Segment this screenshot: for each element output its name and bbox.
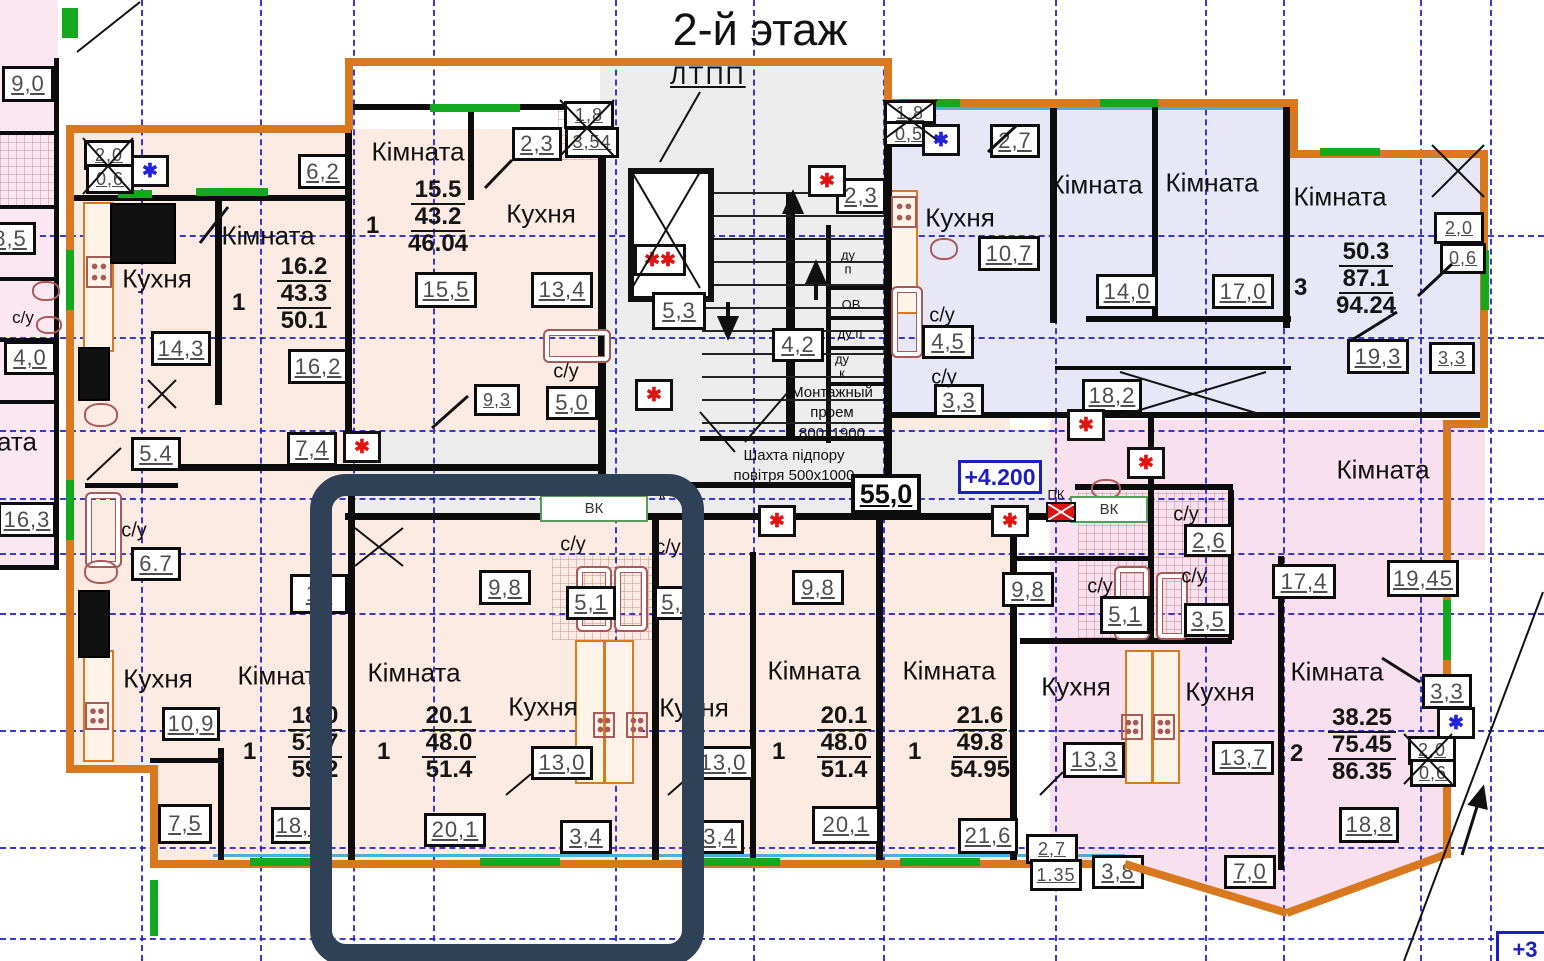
room-label: Кімната (1049, 171, 1142, 198)
area-value-box: 3,54 (565, 127, 619, 158)
building-outline (345, 58, 353, 130)
room-label: ОВ (842, 298, 861, 312)
area-value-box: 3,5 (1184, 603, 1232, 637)
ltpp-label: ЛТПП (670, 62, 746, 91)
area-value-box: 9,8 (792, 570, 844, 605)
room-label: Кімната (1336, 456, 1429, 483)
ltpp-block-fill (345, 62, 600, 108)
grid-axis-vertical (1205, 0, 1207, 961)
area-value-box: 9,8 (1002, 572, 1054, 607)
area-value-box: 10,9 (162, 707, 220, 741)
toilet-icon (930, 238, 958, 260)
area-value-box: 17,4 (1272, 564, 1336, 599)
area-value-box: 5.4 (131, 437, 181, 471)
room-label: Кімната (1290, 658, 1383, 685)
area-value-box: 0,6 (1410, 759, 1456, 787)
room-label: с/у (929, 306, 955, 327)
riser-marker-red: ✱ (635, 379, 673, 411)
building-outline (66, 125, 74, 773)
room-label: Кухня (1041, 673, 1111, 700)
room-label: Кухня (122, 265, 192, 292)
building-outline (66, 765, 158, 773)
room-label: Кімната (1293, 183, 1386, 210)
window-segment (66, 250, 74, 310)
grid-axis-horizontal (0, 553, 1544, 555)
room-label: ду п (841, 248, 855, 275)
room-label: Кімната (902, 657, 995, 684)
wardrobe-block (78, 590, 110, 658)
wall (0, 131, 58, 135)
area-value-box: 2,7 (990, 124, 1040, 158)
area-value-box: 16,3 (0, 502, 56, 537)
area-value-box: 2,0 (1434, 212, 1484, 244)
area-value-box: 5,0 (546, 386, 598, 420)
room-label: с/у (1087, 577, 1113, 598)
room-label: с/у (121, 521, 147, 542)
wall (0, 565, 58, 570)
riser-marker-red: ✱ (991, 505, 1029, 537)
riser-marker-red: ✱ (758, 505, 796, 537)
area-value-box: 13,7 (1212, 741, 1274, 775)
stove-icon (1121, 714, 1143, 740)
wall (1050, 108, 1057, 323)
area-value-box: 3,3 (934, 384, 984, 418)
apartment-stats: 1 20.148.051.4 (772, 702, 890, 783)
stove-icon (86, 256, 112, 288)
area-value-box: 1.35 (1030, 859, 1082, 891)
riser-marker-blue: ✱ (922, 124, 960, 156)
window-segment (196, 188, 268, 196)
area-value-box: 3,3 (1422, 674, 1472, 709)
riser-marker-red: ✱ (1067, 409, 1105, 441)
vk-riser-label: ВК (1070, 496, 1148, 523)
grid-axis-vertical (260, 0, 262, 961)
window-segment (66, 480, 74, 540)
apartment-stats: 3 50.387.194.24 (1294, 238, 1412, 319)
window-segment (900, 858, 980, 866)
wall (1010, 519, 1017, 862)
window-segment (700, 858, 780, 866)
stove-icon (85, 702, 109, 730)
apartment-stats: 1 15.543.246.04 (366, 176, 484, 257)
area-value-box: 7,0 (1224, 855, 1276, 889)
wall (168, 464, 600, 471)
room-label: Кухня (506, 200, 576, 227)
riser-marker-red: ✱ (808, 165, 846, 197)
grid-axis-horizontal (0, 938, 1544, 940)
wall (218, 748, 224, 860)
toilet-icon (36, 316, 62, 334)
room-label: ду п (838, 327, 863, 341)
area-value-box: 0,6 (86, 164, 134, 194)
area-value-box: 5,3 (652, 292, 706, 330)
window-segment (430, 104, 520, 112)
room-label: с/у (1181, 567, 1207, 588)
building-outline (1290, 99, 1298, 157)
area-value-box: 19,3 (1347, 339, 1409, 374)
grid-axis-horizontal (0, 613, 1544, 615)
glazing-line (888, 107, 1288, 110)
elevation-marker-corner: +3 (1496, 931, 1544, 961)
bathtub-icon (891, 286, 923, 358)
riser-marker-red-double: ✱✱ (634, 244, 686, 276)
riser-marker-blue: ✱ (131, 155, 169, 187)
wall (1278, 556, 1284, 870)
area-value-box: 17,0 (1212, 274, 1274, 309)
room-label: Кімната (221, 222, 314, 249)
area-value-box: 19,45 (1387, 560, 1459, 597)
mount-note: Монтажныйпроем800х1900 (770, 383, 894, 444)
area-value-box: 14,3 (151, 331, 211, 366)
area-value-box: 2,6 (1184, 524, 1234, 557)
room-label: с/у (553, 362, 579, 383)
grid-axis-horizontal (0, 498, 1544, 500)
area-value-box: 5,1 (1100, 596, 1150, 634)
bathtub-icon (85, 492, 122, 568)
building-outline (345, 58, 892, 66)
wall (1055, 366, 1291, 370)
wall (1086, 316, 1291, 322)
wall (750, 552, 756, 862)
grid-axis-horizontal (0, 847, 1544, 849)
area-value-box: 4,0 (4, 341, 56, 375)
area-value-box: 13,3 (1063, 742, 1125, 778)
area-value-box: 18,8 (1339, 807, 1399, 843)
wall (85, 483, 178, 488)
elevator-shaft (628, 168, 714, 302)
area-value-box: 7,4 (287, 432, 337, 466)
room-label: Кімната (371, 138, 464, 165)
area-value-box: 9,0 (2, 66, 54, 102)
area-value-box: 7,5 (158, 804, 212, 844)
room-label: Кухня (123, 665, 193, 692)
wardrobe-block (110, 203, 176, 264)
room-label: Кімната (767, 657, 860, 684)
area-value-box: 9,3 (474, 384, 520, 416)
floor-plan-canvas: 2-й этаж ЛТПП Монтажныйпроем800х1900 Шах… (0, 0, 1544, 961)
room-label: Кімната (1165, 169, 1258, 196)
area-value-box: 1,8 (564, 101, 614, 129)
pk-hatch-marker (1046, 502, 1076, 522)
window-segment (1100, 99, 1158, 107)
area-value-box: 3,8 (1092, 855, 1144, 889)
room-label: ата (0, 428, 37, 455)
building-outline (66, 125, 351, 133)
window-segment (1443, 600, 1451, 660)
room-label: с/у (12, 309, 34, 327)
area-value-box: 8,5 (0, 222, 36, 255)
wardrobe-block (78, 347, 110, 401)
toilet-icon (32, 281, 60, 301)
grid-axis-vertical (141, 0, 143, 961)
right-pink-apartments-fill (1010, 415, 1485, 915)
tiled-bath (0, 133, 58, 207)
area-value-box: 4,2 (772, 328, 824, 362)
grid-axis-vertical (1490, 0, 1492, 961)
window-segment (1320, 148, 1380, 156)
north-arrow (1462, 788, 1486, 855)
stove-icon (891, 196, 917, 228)
area-value-box: 10,7 (978, 236, 1040, 271)
room-label: с/у (931, 368, 957, 389)
apartment-stats: 1 16.243.350.1 (232, 253, 350, 334)
area-value-box: 14,0 (1096, 274, 1158, 309)
window-segment (150, 880, 158, 936)
wall (150, 758, 222, 763)
riser-marker-red: ✱ (1127, 447, 1165, 479)
window-segment (62, 8, 78, 38)
toilet-icon (84, 560, 118, 584)
corridor-area-box: 55,0 (851, 474, 921, 514)
riser-marker-red: ✱ (343, 431, 381, 463)
area-value-box: 0,6 (1440, 243, 1486, 274)
room-label: Кухня (925, 204, 995, 231)
wall (598, 108, 606, 490)
room-label: с/у (1173, 505, 1199, 526)
room-label: Кухня (1185, 678, 1255, 705)
apartment-highlight-box[interactable] (310, 474, 704, 961)
stove-icon (1153, 714, 1175, 740)
wall (0, 400, 58, 404)
apartment-stats: 1 21.649.854.95 (908, 702, 1026, 783)
page-title: 2-й этаж (600, 4, 920, 56)
area-value-box: 6,2 (298, 154, 348, 189)
area-value-box: 2,3 (512, 127, 562, 161)
area-value-box: 18,2 (1082, 379, 1142, 413)
area-value-box: 3,3 (1429, 342, 1475, 374)
toilet-icon (84, 403, 118, 427)
elevation-marker: +4.200 (958, 460, 1042, 494)
area-value-box: 13,4 (531, 272, 593, 308)
building-outline (150, 765, 158, 868)
wall (1283, 106, 1290, 328)
area-value-box: 20,1 (812, 806, 880, 844)
wall (1012, 556, 1152, 561)
wall (0, 205, 58, 209)
apartment-stats: 2 38.2575.4586.35 (1290, 704, 1408, 785)
area-value-box: 15,5 (415, 272, 477, 308)
room-label: ду к (835, 352, 849, 379)
area-value-box: 6.7 (131, 547, 181, 581)
area-value-box: 16,2 (288, 349, 348, 384)
bathtub-icon (543, 329, 611, 363)
area-value-box: 4,5 (922, 325, 974, 359)
riser-marker-blue: ✱ (1437, 707, 1475, 739)
area-value-box: 21,6 (958, 818, 1018, 854)
room-label: ПК (1048, 488, 1065, 502)
